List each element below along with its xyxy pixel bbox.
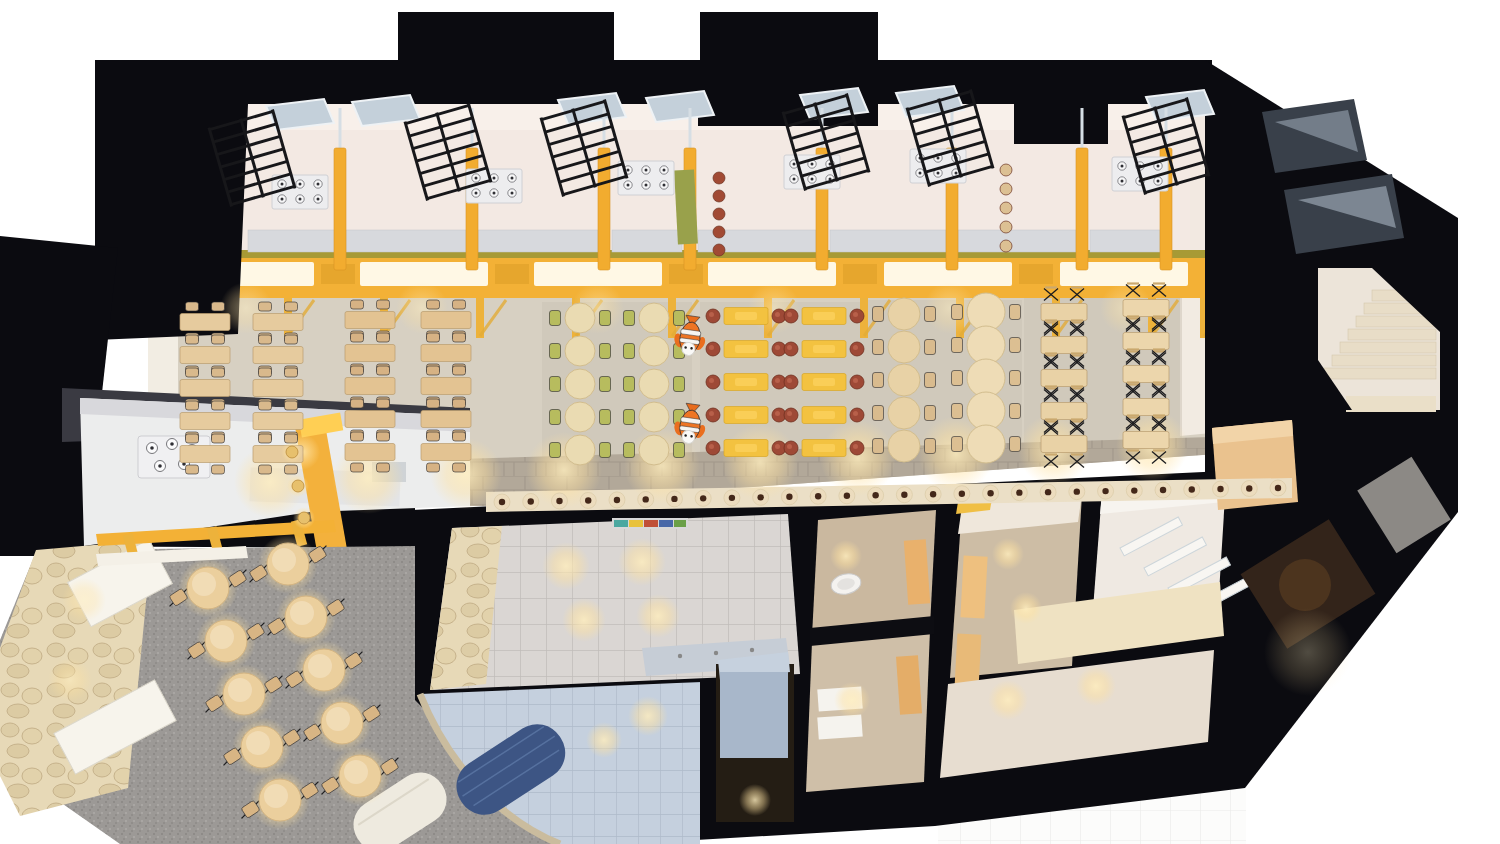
dining-table [421,312,471,329]
chair [873,373,884,388]
roof-block [700,12,878,62]
dining-table-round [565,336,595,366]
canopy-mesh [1019,264,1053,284]
dining-table-round [888,298,920,330]
chair [453,300,466,309]
bench-stool-center [901,492,907,498]
table-sheen [210,625,234,649]
chair [427,333,440,342]
chair [186,335,199,344]
stair-step [1356,316,1436,327]
chair [600,377,611,392]
burner-center [493,177,496,180]
dining-table-round [888,430,920,462]
chair [285,401,298,410]
yellow-partition [334,148,346,270]
dining-table [421,444,471,461]
chair [1010,404,1021,419]
bench-stool-center [1217,486,1223,492]
chair [259,335,272,344]
stair-step [1324,368,1436,379]
chair [453,333,466,342]
bar-stool [286,446,298,458]
mosaic-tile [629,520,643,527]
chair [1010,437,1021,452]
table-sheen [813,411,835,419]
dining-table-round [639,402,669,432]
burner-center [793,163,796,166]
dining-table [253,413,303,430]
chair [377,432,390,441]
stall-counter [248,230,336,252]
stall-counter [612,230,682,252]
counter-stool [1000,221,1012,233]
door-panel [896,655,922,714]
chair [377,300,390,309]
burner-center [793,178,796,181]
bench-stool-center [987,490,993,496]
chair [453,366,466,375]
dining-table [253,314,303,331]
dining-table-round [967,359,1005,397]
dining-table-round [565,303,595,333]
chair [624,410,635,425]
burner-center [158,464,162,468]
stool-highlight [709,345,714,350]
light-pool [820,420,896,496]
burner-center [1157,165,1160,168]
yellow-partition [1076,148,1088,270]
chair [674,311,685,326]
dining-table-round [639,336,669,366]
table-sheen [264,784,288,808]
chair [1010,305,1021,320]
stair-step [1332,355,1436,366]
table-sheen [813,312,835,320]
chair [285,302,298,311]
burner-center [811,178,814,181]
burner-center [937,157,940,160]
chair [1010,371,1021,386]
bench-stool-center [1102,488,1108,494]
bench-stool-center [643,496,649,502]
counter-stool [713,190,725,202]
stool-highlight [853,345,858,350]
chair [212,434,225,443]
counter-stool [713,172,725,184]
stool-highlight [775,444,780,449]
dining-table-round [639,435,669,465]
burner-center [663,169,666,172]
stool-highlight [787,345,792,350]
bench-stool-center [930,491,936,497]
stool-highlight [787,444,792,449]
light-pool [988,680,1028,720]
stool-highlight [853,411,858,416]
bench-stool-center [757,494,763,500]
burner-center [937,172,940,175]
chair [212,335,225,344]
table-sheen [272,548,296,572]
dining-table [180,314,230,331]
table-sheen [813,444,835,452]
bench-stool-center [959,491,965,497]
floorplan-svg [0,0,1500,844]
chair [427,399,440,408]
dining-table [1041,403,1087,420]
mosaic-tile [659,520,673,527]
chair [377,366,390,375]
floorplan-render [0,0,1500,844]
dining-table [421,345,471,362]
chair [674,443,685,458]
stool-highlight [787,312,792,317]
stool-highlight [775,312,780,317]
bench-stool-center [1016,489,1022,495]
table-sheen [344,760,368,784]
light-pool [739,784,771,816]
light-pool [618,538,666,586]
counter-stool [713,208,725,220]
chair [550,410,561,425]
bar-stool [298,512,310,524]
chair [186,368,199,377]
light-pool [586,722,622,758]
chair [427,366,440,375]
table-sheen [326,707,350,731]
burner-center [811,163,814,166]
dining-table [180,347,230,364]
stool-highlight [709,312,714,317]
chair [624,443,635,458]
chair [186,434,199,443]
dining-table [345,345,395,362]
burner-center [511,177,514,180]
dining-table-round [639,303,669,333]
burner-center [170,442,174,446]
burner-center [1121,180,1124,183]
dining-table-round [565,369,595,399]
chair [952,305,963,320]
chair [351,463,364,472]
light-pool [62,578,106,622]
burner-center [645,184,648,187]
burner-center [475,177,478,180]
burner-center [150,446,154,450]
dining-table-round [967,293,1005,331]
dining-table-round [639,369,669,399]
dining-table-round [967,326,1005,364]
dining-table [180,413,230,430]
chair [259,302,272,311]
faucet [714,651,718,655]
stool-highlight [775,345,780,350]
burner-center [317,183,320,186]
chair [186,465,199,474]
chair [873,307,884,322]
faucet [750,648,754,652]
chair [259,465,272,474]
roof-block [398,12,614,62]
dining-table [180,380,230,397]
bench-stool-center [585,497,591,503]
chair [600,443,611,458]
bench-stool-center [872,492,878,498]
burner-center [475,192,478,195]
chair [873,406,884,421]
chair [259,368,272,377]
table-sheen [308,654,332,678]
canopy-mesh [843,264,877,284]
burner-center [627,184,630,187]
chair [550,344,561,359]
light-pool [48,658,92,702]
bar-stool [292,480,304,492]
light-pool [722,424,798,500]
counter-stool [1000,240,1012,252]
burner-center [511,192,514,195]
chair [427,463,440,472]
chair [952,437,963,452]
stool-highlight [775,411,780,416]
table-sheen [735,312,757,320]
dining-table [421,411,471,428]
chair [259,434,272,443]
chair [351,333,364,342]
table-sheen [290,601,314,625]
chair [351,399,364,408]
green-shelf [674,170,698,245]
stool-highlight [787,378,792,383]
dining-table-round [888,397,920,429]
dining-table [253,347,303,364]
bench-stool-center [528,498,534,504]
chair [453,399,466,408]
chair [925,406,936,421]
mosaic-tile [674,520,686,527]
light-pool [542,542,590,590]
table-sheen [192,572,216,596]
chair [351,300,364,309]
mosaic-tile [644,520,658,527]
table-sheen [813,345,835,353]
stool-highlight [853,378,858,383]
counter-stool [1000,164,1012,176]
stool-highlight [709,378,714,383]
burner-center [663,184,666,187]
chair [925,439,936,454]
chair [453,432,466,441]
dining-table [345,444,395,461]
dining-table [180,446,230,463]
chair [952,404,963,419]
chair [212,368,225,377]
stair-step [1348,329,1436,340]
counter-stool [1000,202,1012,214]
door-panel [904,539,930,604]
chair [259,401,272,410]
chair [212,465,225,474]
bench-stool-center [1275,485,1281,491]
yellow-partition [598,148,610,270]
burner-center [1121,165,1124,168]
bench-stool-center [844,493,850,499]
dining-table [1041,436,1087,453]
chair [925,373,936,388]
light-pool [992,538,1024,570]
burner-center [919,172,922,175]
mosaic-tile [614,520,628,527]
stool-highlight [709,444,714,449]
dining-table [421,378,471,395]
canopy-mesh [495,264,529,284]
stool-highlight [853,444,858,449]
bench-stool-center [1045,489,1051,495]
chair [377,463,390,472]
stool-highlight [775,378,780,383]
burner-center [645,169,648,172]
chair [873,439,884,454]
bench-stool-center [1189,486,1195,492]
bench-stool-center [1160,487,1166,493]
burner-center [281,183,284,186]
table-sheen [246,731,270,755]
stall-counter [1090,230,1160,252]
chair [600,344,611,359]
chair [186,302,199,311]
chair [186,401,199,410]
chair [624,311,635,326]
stool-highlight [709,411,714,416]
stair-step [1340,342,1436,353]
service-rooms [806,480,1249,792]
burner-center [317,198,320,201]
dining-oval [952,293,1021,463]
dining-table-round [565,402,595,432]
table-sheen [228,678,252,702]
bench-stool-center [499,499,505,505]
burner-center [281,198,284,201]
burner-center [299,198,302,201]
chair [952,371,963,386]
light-pool [636,594,680,638]
exhaust-hood-block [1014,60,1108,144]
chair [952,338,963,353]
chair [550,377,561,392]
bench-stool-center [700,495,706,501]
burner-center [1157,180,1160,183]
stool-highlight [787,411,792,416]
chair [624,377,635,392]
dining-table [1123,300,1169,317]
chair [600,311,611,326]
bench-stool-center [671,496,677,502]
dining-table [1123,333,1169,350]
chair [285,368,298,377]
stall-counter [830,230,946,252]
chair [427,432,440,441]
elevator-cube [720,672,788,758]
dining-table [1041,337,1087,354]
bench-stool-center [1246,485,1252,491]
dining-table [1041,304,1087,321]
table-sheen [735,411,757,419]
dining-table-round [967,392,1005,430]
stall-counter [958,230,1076,252]
dining-table [253,380,303,397]
burner-center [955,172,958,175]
chair [1010,338,1021,353]
chair [925,307,936,322]
bench-stool-center [815,493,821,499]
burner-center [627,169,630,172]
stair-landing [1346,396,1436,412]
chair [285,335,298,344]
dining-table [345,312,395,329]
dining-x-b [1123,284,1169,464]
chair [674,377,685,392]
chair [600,410,611,425]
bench-stool-center [614,497,620,503]
chair [351,432,364,441]
bench-stool-center [556,498,562,504]
dining-table-round [967,425,1005,463]
chair [351,366,364,375]
dining-table-round [888,331,920,363]
dining-x-a [1041,288,1087,468]
table-sheen [813,378,835,386]
dining-table [1123,432,1169,449]
light-pool [1010,592,1042,624]
light-pool [830,540,862,572]
counter-stool [713,244,725,256]
cabinet [960,555,987,618]
dining-table-round [565,435,595,465]
chair [453,463,466,472]
light-pool [834,682,870,718]
dining-table [1041,370,1087,387]
dining-table [1123,399,1169,416]
chair [285,465,298,474]
chair [377,333,390,342]
dark-storage-glow [1279,559,1331,611]
stall-counter [346,230,466,252]
stool-highlight [853,312,858,317]
chair [212,302,225,311]
burner-center [493,192,496,195]
cabinet [955,633,982,686]
chair [427,300,440,309]
dining-table [345,378,395,395]
chair [377,399,390,408]
table-sheen [735,378,757,386]
table-sheen [735,444,757,452]
light-pool [562,598,606,642]
yellow-partition [466,148,478,270]
light-pool [1264,608,1352,696]
chair [550,311,561,326]
table-sheen [735,345,757,353]
stall-counter [478,230,598,252]
dining-table-round [888,364,920,396]
chair [925,340,936,355]
light-pool [628,696,668,736]
counter-stool [713,226,725,238]
bench-stool-center [729,495,735,501]
dining-table [1123,366,1169,383]
shelf [817,714,862,739]
bench-stool-center [1074,488,1080,494]
